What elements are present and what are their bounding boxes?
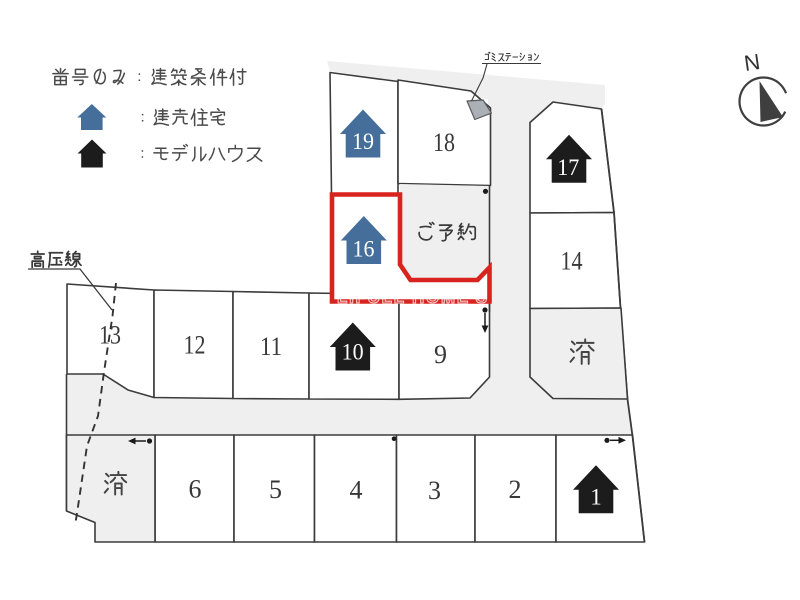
svg-text:2: 2: [509, 475, 522, 504]
svg-text:16: 16: [353, 237, 375, 262]
svg-text:9: 9: [434, 340, 447, 369]
svg-text:11: 11: [260, 332, 282, 361]
svg-text:19: 19: [352, 129, 374, 154]
svg-text:1: 1: [590, 485, 602, 510]
svg-text:3: 3: [428, 476, 441, 505]
svg-text:6: 6: [189, 475, 202, 504]
svg-text:17: 17: [557, 155, 579, 180]
svg-text:18: 18: [433, 128, 455, 157]
svg-text:14: 14: [561, 247, 583, 276]
svg-text:LIFULL HOME'S: LIFULL HOME'S: [337, 288, 487, 307]
svg-text:12: 12: [184, 331, 206, 360]
svg-text:10: 10: [342, 340, 364, 365]
svg-text:4: 4: [350, 476, 363, 505]
svg-text:5: 5: [269, 475, 282, 504]
